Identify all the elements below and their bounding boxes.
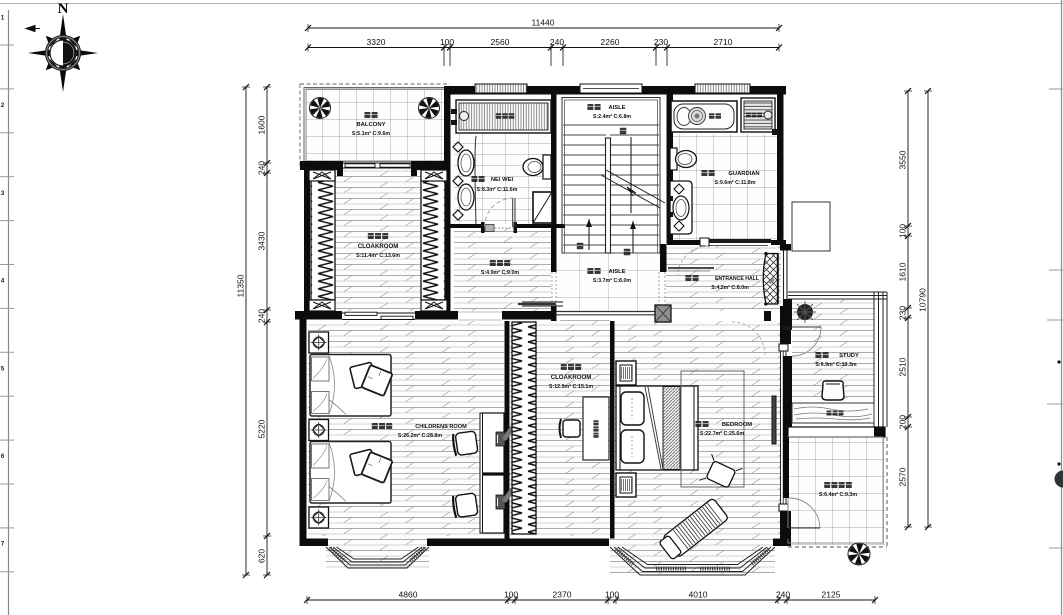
svg-text:1610: 1610 <box>898 262 908 281</box>
svg-text:NEI WEI: NEI WEI <box>491 177 514 183</box>
svg-text:S:6.4m² C:9.3m: S:6.4m² C:9.3m <box>819 492 858 498</box>
svg-text:230: 230 <box>898 306 908 320</box>
svg-text:S:2.4m² C:6.8m: S:2.4m² C:6.8m <box>593 114 632 120</box>
svg-text:200: 200 <box>898 415 908 429</box>
svg-text:S:12.9m² C:15.1m: S:12.9m² C:15.1m <box>549 384 593 390</box>
svg-text:AISLE: AISLE <box>608 269 625 275</box>
svg-text:2125: 2125 <box>822 590 841 600</box>
svg-text:620: 620 <box>257 549 267 563</box>
svg-text:CLOAKROOM: CLOAKROOM <box>358 243 399 250</box>
svg-text:100: 100 <box>898 224 908 238</box>
svg-text:100: 100 <box>440 37 454 47</box>
svg-text:S:9.6m² C:11.8m: S:9.6m² C:11.8m <box>715 180 756 186</box>
svg-text:3550: 3550 <box>898 150 908 169</box>
svg-text:2260: 2260 <box>601 37 620 47</box>
svg-text:S:11.4m² C:13.6m: S:11.4m² C:13.6m <box>356 253 400 259</box>
svg-text:4860: 4860 <box>399 590 418 600</box>
svg-text:BALCONY: BALCONY <box>356 122 385 128</box>
svg-text:STUDY: STUDY <box>839 353 859 359</box>
svg-text:CHILDRENS ROOM: CHILDRENS ROOM <box>415 424 467 430</box>
svg-text:230: 230 <box>654 37 668 47</box>
svg-text:240: 240 <box>257 161 267 175</box>
svg-text:2710: 2710 <box>714 37 733 47</box>
svg-text:S:26.2m² C:28.8m: S:26.2m² C:28.8m <box>398 433 442 439</box>
svg-text:2370: 2370 <box>553 590 572 600</box>
svg-text:ENTRANCE HALL: ENTRANCE HALL <box>715 276 760 282</box>
svg-text:S:8.3m² C:11.6m: S:8.3m² C:11.6m <box>477 187 518 193</box>
svg-text:2510: 2510 <box>898 357 908 376</box>
svg-text:1600: 1600 <box>257 115 267 134</box>
svg-text:11440: 11440 <box>531 18 554 28</box>
svg-text:S:5.1m² C:9.6m: S:5.1m² C:9.6m <box>352 131 391 137</box>
svg-text:AISLE: AISLE <box>608 105 625 111</box>
svg-text:3320: 3320 <box>367 37 386 47</box>
svg-text:100: 100 <box>504 590 518 600</box>
svg-text:4010: 4010 <box>689 590 708 600</box>
svg-text:5220: 5220 <box>257 419 267 438</box>
svg-text:GUARDIAN: GUARDIAN <box>728 171 759 177</box>
svg-text:100: 100 <box>605 590 619 600</box>
svg-text:S:4.2m² C:8.0m: S:4.2m² C:8.0m <box>711 285 749 291</box>
svg-text:11350: 11350 <box>236 274 246 297</box>
svg-text:S:22.7m² C:25.6m: S:22.7m² C:25.6m <box>700 431 744 437</box>
svg-text:2570: 2570 <box>898 467 908 486</box>
svg-text:2560: 2560 <box>491 37 510 47</box>
svg-text:S:4.9m² C:9.0m: S:4.9m² C:9.0m <box>481 270 520 276</box>
svg-text:240: 240 <box>776 590 790 600</box>
svg-text:240: 240 <box>550 37 564 47</box>
svg-text:240: 240 <box>257 309 267 323</box>
svg-text:CLOAKROOM: CLOAKROOM <box>551 374 592 381</box>
svg-text:10790: 10790 <box>918 288 928 312</box>
svg-text:S:6.9m² C:10.3m: S:6.9m² C:10.3m <box>815 362 857 368</box>
svg-text:BEDROOM: BEDROOM <box>722 422 752 428</box>
svg-text:3430: 3430 <box>257 231 267 250</box>
svg-text:S:3.7m² C:8.0m: S:3.7m² C:8.0m <box>593 278 632 284</box>
